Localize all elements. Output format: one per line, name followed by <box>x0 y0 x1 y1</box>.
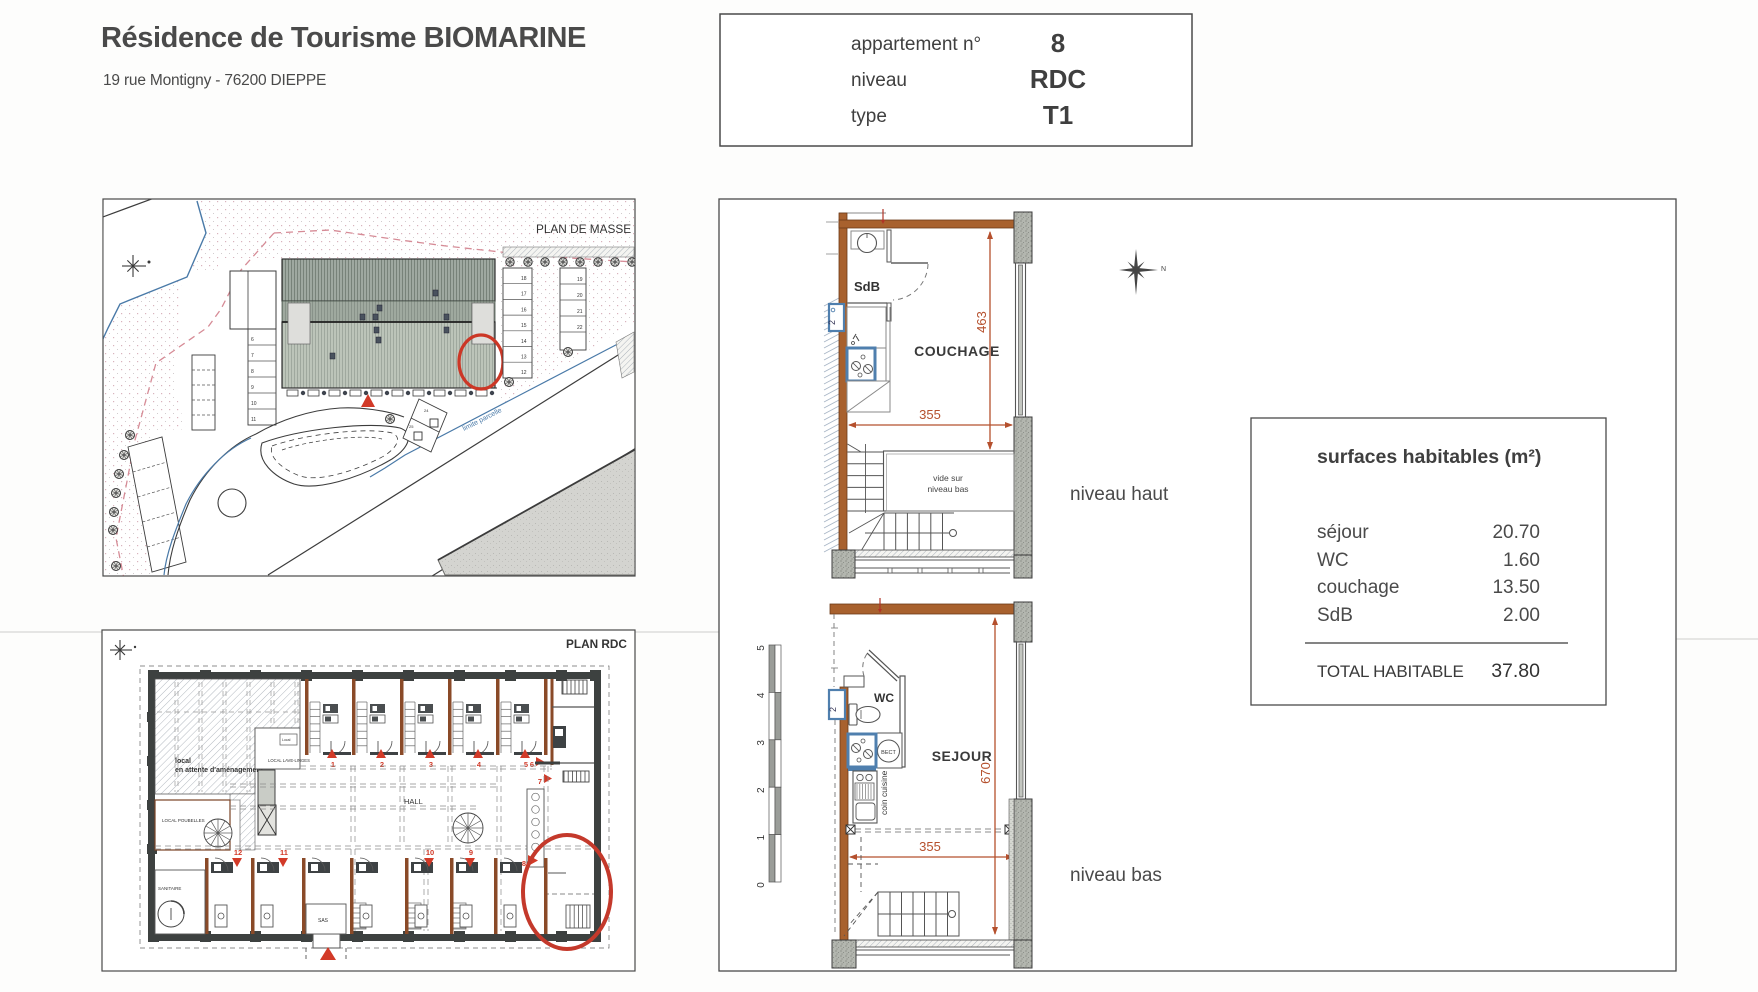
svg-text:11: 11 <box>280 848 288 857</box>
svg-text:1: 1 <box>331 760 335 769</box>
svg-text:13: 13 <box>521 355 527 361</box>
svg-text:5: 5 <box>756 645 767 651</box>
svg-text:1.60: 1.60 <box>1503 550 1540 571</box>
svg-text:20.70: 20.70 <box>1492 522 1540 543</box>
svg-text:13.50: 13.50 <box>1492 577 1540 598</box>
svg-text:21: 21 <box>577 309 583 315</box>
svg-text:9: 9 <box>251 385 254 391</box>
svg-text:17: 17 <box>521 292 527 298</box>
svg-text:8: 8 <box>1051 28 1065 58</box>
svg-text:niveau bas: niveau bas <box>927 484 968 494</box>
svg-text:couchage: couchage <box>1317 577 1399 598</box>
svg-text:local: local <box>175 758 191 765</box>
svg-text:2: 2 <box>827 320 837 325</box>
svg-text:RDC: RDC <box>1030 64 1087 94</box>
svg-text:WC: WC <box>874 691 894 705</box>
svg-text:15: 15 <box>521 323 527 329</box>
svg-text:surfaces habitables (m²): surfaces habitables (m²) <box>1317 446 1541 468</box>
svg-text:22: 22 <box>577 325 583 331</box>
svg-text:12: 12 <box>234 848 242 857</box>
svg-text:7: 7 <box>538 777 542 786</box>
svg-text:vide sur: vide sur <box>933 473 963 483</box>
svg-text:niveau bas: niveau bas <box>1070 865 1162 886</box>
svg-text:20: 20 <box>577 293 583 299</box>
svg-text:25: 25 <box>409 424 414 429</box>
svg-text:LOCAL POUBELLES: LOCAL POUBELLES <box>162 818 205 823</box>
svg-text:18: 18 <box>521 276 527 282</box>
svg-text:37.80: 37.80 <box>1491 660 1540 682</box>
svg-text:19 rue Montigny - 76200 DIEPPE: 19 rue Montigny - 76200 DIEPPE <box>103 72 326 89</box>
svg-text:coin cuisine: coin cuisine <box>879 770 889 815</box>
svg-text:2: 2 <box>828 707 838 712</box>
svg-text:11: 11 <box>251 417 256 423</box>
svg-text:7: 7 <box>251 353 254 359</box>
svg-text:2.00: 2.00 <box>1503 605 1540 626</box>
svg-text:PLAN RDC: PLAN RDC <box>566 637 627 651</box>
svg-text:BECT: BECT <box>881 750 896 756</box>
svg-text:8: 8 <box>251 369 254 375</box>
svg-text:N: N <box>1161 266 1166 273</box>
svg-text:LOCAL LAVE-LINGES: LOCAL LAVE-LINGES <box>268 758 310 763</box>
svg-text:WC: WC <box>1317 550 1349 571</box>
svg-text:COUCHAGE: COUCHAGE <box>914 343 1000 359</box>
svg-text:9: 9 <box>469 848 473 857</box>
svg-text:SANITAIRE: SANITAIRE <box>158 886 181 891</box>
svg-text:HALL: HALL <box>404 797 423 806</box>
svg-text:355: 355 <box>919 839 941 854</box>
svg-text:24: 24 <box>424 408 429 413</box>
svg-text:4: 4 <box>756 692 767 698</box>
svg-text:1: 1 <box>756 834 767 840</box>
svg-text:type: type <box>851 106 887 127</box>
svg-text:SdB: SdB <box>854 279 880 294</box>
svg-text:2: 2 <box>380 760 384 769</box>
svg-text:16: 16 <box>521 307 527 313</box>
svg-text:Local: Local <box>282 738 291 742</box>
svg-text:670: 670 <box>978 762 993 784</box>
svg-text:Résidence de Tourisme BIOMARIN: Résidence de Tourisme BIOMARINE <box>101 22 586 54</box>
svg-text:niveau: niveau <box>851 70 907 91</box>
svg-text:appartement n°: appartement n° <box>851 34 981 55</box>
svg-text:3: 3 <box>756 740 767 746</box>
svg-text:séjour: séjour <box>1317 522 1369 543</box>
svg-text:PLAN DE MASSE: PLAN DE MASSE <box>536 222 631 236</box>
svg-text:niveau haut: niveau haut <box>1070 484 1169 505</box>
svg-text:6: 6 <box>251 337 254 343</box>
svg-text:10: 10 <box>251 401 257 407</box>
svg-text:2: 2 <box>756 787 767 793</box>
svg-text:12: 12 <box>521 370 527 376</box>
svg-text:SEJOUR: SEJOUR <box>932 748 993 764</box>
svg-text:10: 10 <box>426 848 434 857</box>
svg-text:5: 5 <box>524 760 528 769</box>
svg-text:19: 19 <box>577 277 583 283</box>
svg-text:TOTAL HABITABLE: TOTAL HABITABLE <box>1317 662 1464 681</box>
svg-text:14: 14 <box>521 339 527 345</box>
svg-text:SAS: SAS <box>318 918 329 924</box>
svg-text:463: 463 <box>974 311 989 333</box>
svg-text:SdB: SdB <box>1317 605 1353 626</box>
svg-text:en attente d'aménagement: en attente d'aménagement <box>175 767 264 774</box>
svg-text:T1: T1 <box>1043 100 1073 130</box>
svg-text:0: 0 <box>756 882 767 888</box>
svg-text:6: 6 <box>530 760 534 769</box>
svg-text:3: 3 <box>429 760 433 769</box>
svg-text:355: 355 <box>919 407 941 422</box>
